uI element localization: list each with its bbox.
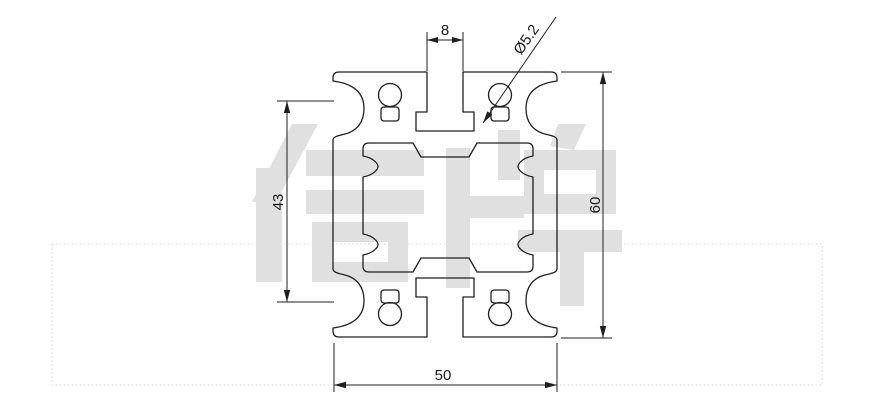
dotted-reference-box <box>52 244 822 385</box>
watermark <box>252 124 622 306</box>
corner-hole-bottom-left <box>379 303 402 326</box>
arrowhead <box>427 37 438 43</box>
arrowhead <box>284 290 290 302</box>
watermark-stroke <box>560 230 584 306</box>
technical-drawing-canvas: 8 Ø5.2 43 60 50 <box>0 0 880 420</box>
dimension-label-left-height: 43 <box>270 194 287 211</box>
watermark-stroke <box>498 130 520 180</box>
arrowhead <box>452 37 463 43</box>
corner-hole-bottom-right <box>489 303 512 326</box>
slot-cavity <box>381 107 399 121</box>
technical-drawing-page: 8 Ø5.2 43 60 50 <box>0 0 880 420</box>
watermark-stroke <box>256 168 282 282</box>
arrowhead <box>600 326 606 338</box>
slot-cavity <box>381 290 399 303</box>
dimension-label-top-slot: 8 <box>441 22 449 39</box>
dimension-label-overall-height: 60 <box>587 197 604 214</box>
arrowhead <box>284 101 290 113</box>
slot-cavity <box>491 107 509 121</box>
arrowhead <box>545 382 557 388</box>
dimension-label-overall-width: 50 <box>435 367 452 384</box>
watermark-stroke <box>306 190 424 214</box>
dimension-label-hole-diameter: Ø5.2 <box>510 22 543 58</box>
arrowhead <box>600 72 606 84</box>
slot-cavity <box>491 290 509 303</box>
dimension-overall-width: 50 <box>334 343 557 392</box>
leader-line <box>483 17 556 123</box>
corner-hole-top-left <box>379 84 402 107</box>
arrowhead <box>334 382 346 388</box>
watermark-stroke <box>446 196 524 218</box>
dimension-top-slot-width: 8 <box>427 22 463 71</box>
diameter-callout: Ø5.2 <box>483 17 556 123</box>
watermark-stroke <box>306 150 424 176</box>
